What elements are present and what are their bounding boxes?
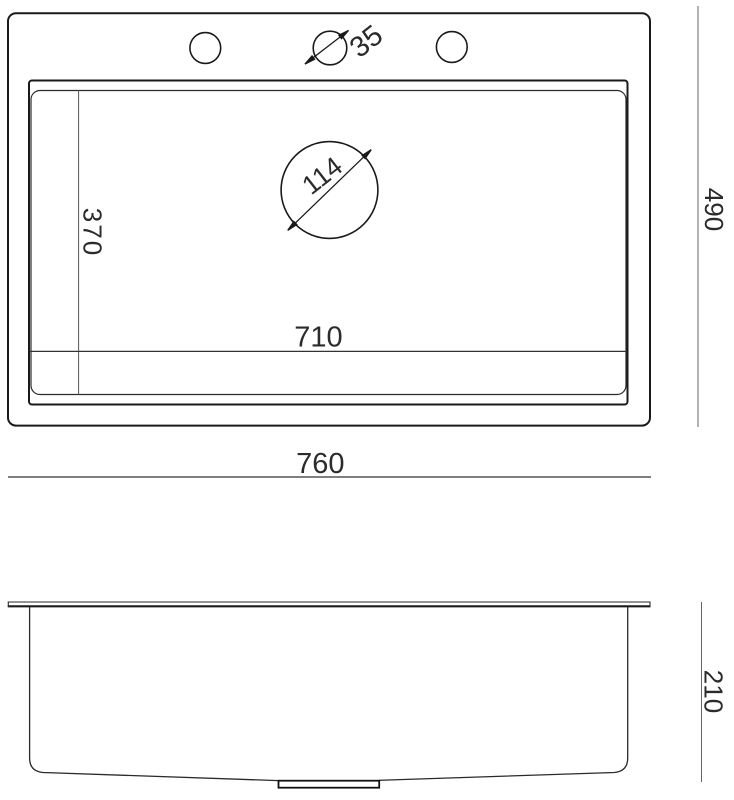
svg-text:114: 114	[296, 151, 348, 201]
svg-text:760: 760	[296, 448, 344, 480]
svg-text:370: 370	[78, 208, 108, 257]
svg-text:210: 210	[699, 670, 729, 713]
svg-text:35: 35	[344, 19, 389, 64]
svg-text:710: 710	[294, 322, 342, 354]
svg-text:490: 490	[699, 188, 729, 231]
